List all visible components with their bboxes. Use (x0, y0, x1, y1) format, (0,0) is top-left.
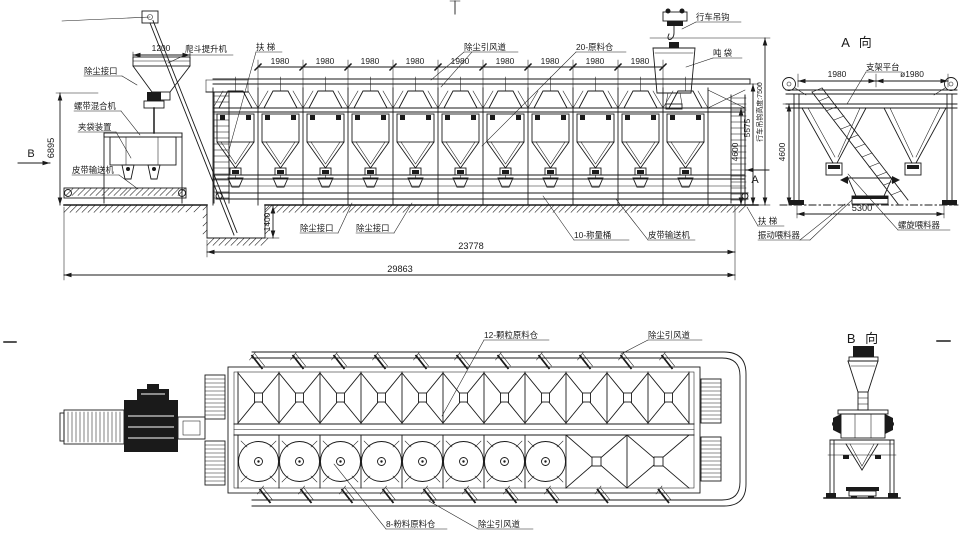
dim-4600-viewa: 4600 (777, 142, 787, 161)
label-weigh-bins: 10-称量桶 (574, 230, 611, 240)
dim-1980-4: 1980 (406, 56, 425, 66)
dim-1980-9: 1980 (631, 56, 650, 66)
dim-1400: 1400 (262, 212, 272, 231)
engineering-drawing: 1980 1980 1980 1980 1980 1980 1980 1980 … (0, 0, 960, 543)
dim-1980-viewa: 1980 (828, 69, 847, 79)
drawing-sheet: 1980 1980 1980 1980 1980 1980 1980 1980 … (0, 0, 960, 543)
dim-1980-2: 1980 (316, 56, 335, 66)
label-view-a-title: A 向 (841, 35, 875, 50)
label-crane-hook: 行车吊钩 (696, 12, 730, 22)
label-view-b-title: B 向 (847, 331, 881, 346)
dim-crane-height: 行车吊钩高度:7500 (755, 82, 764, 142)
dim-5300: 5300 (852, 203, 872, 213)
label-dust-duct-plan-top: 除尘引风道 (648, 330, 690, 340)
label-powder-silos: 8-粉料原料仓 (386, 519, 436, 529)
label-dust-port-3: 除尘接口 (356, 223, 390, 233)
dim-4600-elev: 4600 (730, 142, 740, 161)
dim-23778: 23778 (458, 241, 484, 251)
label-section-b: B (27, 148, 34, 160)
dim-1980-7: 1980 (541, 56, 560, 66)
label-bucket-elevator: 爬斗提升机 (185, 44, 227, 54)
dim-1980-1: 1980 (271, 56, 290, 66)
label-ladder-right: 扶 梯 (758, 216, 777, 226)
dim-1200: 1200 (152, 43, 171, 53)
label-support-platform: 支架平台 (866, 62, 900, 72)
dim-1980-6: 1980 (496, 56, 515, 66)
label-dust-port-2: 除尘接口 (300, 223, 334, 233)
label-vibrating-feeder: 振动喂料器 (758, 230, 800, 240)
label-bag-clamp: 夹袋装置 (78, 122, 112, 132)
label-dust-duct-plan-bottom: 除尘引风道 (478, 519, 520, 529)
label-belt-conveyor-1: 皮带输送机 (72, 165, 114, 175)
label-dust-duct-elev: 除尘引风道 (464, 42, 506, 52)
dim-1980-3: 1980 (361, 56, 380, 66)
dim-1980-8: 1980 (586, 56, 605, 66)
dim-6895: 6895 (46, 138, 56, 158)
dim-5575: 5575 (742, 118, 752, 137)
label-section-a: A (751, 174, 759, 186)
label-dust-port-1: 除尘接口 (84, 66, 118, 76)
dim-dia1980: ø1980 (900, 69, 924, 79)
label-granular-silos: 12-颗粒原料仓 (484, 330, 539, 340)
label-ton-bag: 吨 袋 (713, 48, 733, 58)
label-silos-20: 20-原料仓 (576, 42, 614, 52)
dim-29863: 29863 (387, 264, 413, 274)
label-belt-conveyor-2: 皮带输送机 (648, 230, 690, 240)
label-ladder-top: 扶 梯 (256, 42, 275, 52)
label-ribbon-mixer: 螺带混合机 (74, 101, 116, 111)
label-screw-feeder: 螺旋喂料器 (898, 220, 940, 230)
